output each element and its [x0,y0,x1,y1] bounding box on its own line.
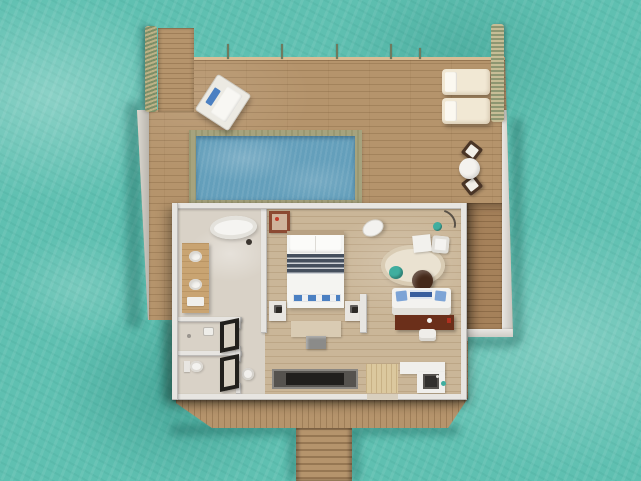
lamp-icon [274,305,282,313]
chair-cushion [465,144,479,158]
dresser [272,369,358,389]
glass-door-1 [220,318,239,353]
wall-bath-bedroom [261,209,267,333]
sun-lounger-1 [442,69,490,95]
pillow-divider [315,236,316,252]
nightstand-left [269,301,286,321]
sofa-throw [410,290,432,299]
glass-panel [286,373,344,385]
sofa [392,288,451,315]
towel [187,297,204,306]
entry-mat [366,364,398,393]
deck-top-edge [194,57,505,60]
wall-east [461,203,467,400]
wall-west [172,203,178,400]
double-bed [287,231,344,308]
glass-door-2 [220,354,239,392]
wall-art [269,211,290,233]
lamp-icon [350,305,358,313]
wall-living-stub [360,294,367,333]
villa-floorplan-render [0,0,641,481]
jetty-stairs [296,428,352,481]
bed-striped-runner [287,254,344,274]
bed-foot-runner [293,294,341,302]
entry-threshold [367,394,398,400]
rope-coil [491,24,504,122]
tub-faucet [246,239,252,245]
sofa-pillow [435,290,447,301]
edge-post [419,48,421,59]
water-shadow-right [511,118,523,344]
wall-south [172,394,467,400]
side-deck [467,203,505,337]
pedestal-basin [242,368,254,380]
plunge-pool [196,136,355,200]
foot-bench [291,321,341,337]
desk-chair [431,235,449,253]
rear-deck [176,398,468,430]
kitchen-faucet [436,375,439,378]
edge-post [281,44,283,59]
double-vanity [182,243,209,313]
sofa-pillow [396,290,408,301]
console-desk [395,315,454,330]
console-accent [447,318,451,323]
edge-post [227,44,229,59]
teal-cup [441,381,446,386]
shower-head [203,327,214,336]
art-dot [275,217,279,221]
wall-north [172,203,467,209]
round-dining-table [459,158,480,179]
tv [306,336,326,349]
lounger-pillow [445,72,457,92]
arrival-walkway [158,28,194,112]
console-chair [419,329,436,341]
toilet [190,361,203,372]
sink-1 [189,251,202,262]
shower-drain [187,334,191,338]
villa-interior [172,203,467,400]
chair-cushion [465,178,479,192]
sun-lounger-2 [442,98,490,124]
water-shadow-alcove [462,336,516,348]
edge-post [390,44,392,59]
teal-pouf [389,266,403,279]
sink-2 [189,279,202,290]
console-knob [427,318,432,323]
edge-post [336,44,338,59]
lounger-pillow [445,101,457,121]
writing-desk [412,234,432,253]
rope-garland-railing [145,26,157,112]
